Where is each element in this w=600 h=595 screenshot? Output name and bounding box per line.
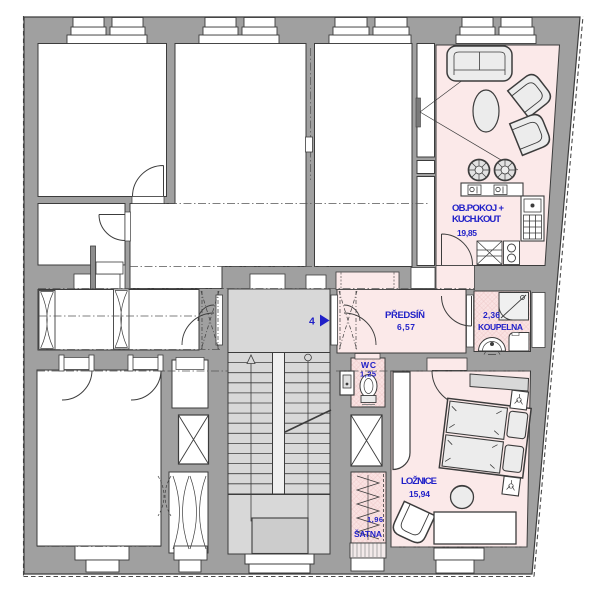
- svg-text:6,57: 6,57: [397, 322, 415, 332]
- svg-text:15,94: 15,94: [409, 489, 430, 499]
- svg-text:4: 4: [309, 316, 315, 328]
- svg-text:KUCH.KOUT: KUCH.KOUT: [452, 214, 501, 225]
- svg-text:19,85: 19,85: [457, 228, 477, 238]
- svg-text:1,25: 1,25: [360, 370, 376, 379]
- svg-text:LOŽNICE: LOŽNICE: [401, 475, 437, 487]
- svg-text:ŠATNA: ŠATNA: [354, 528, 382, 539]
- svg-text:2,36: 2,36: [483, 310, 500, 320]
- svg-text:WC: WC: [361, 360, 376, 370]
- svg-text:1,96: 1,96: [367, 515, 383, 524]
- svg-text:KOUPELNA: KOUPELNA: [478, 322, 523, 332]
- svg-text:PŘEDSÍŇ: PŘEDSÍŇ: [385, 309, 425, 321]
- svg-text:OB.POKOJ +: OB.POKOJ +: [452, 203, 504, 214]
